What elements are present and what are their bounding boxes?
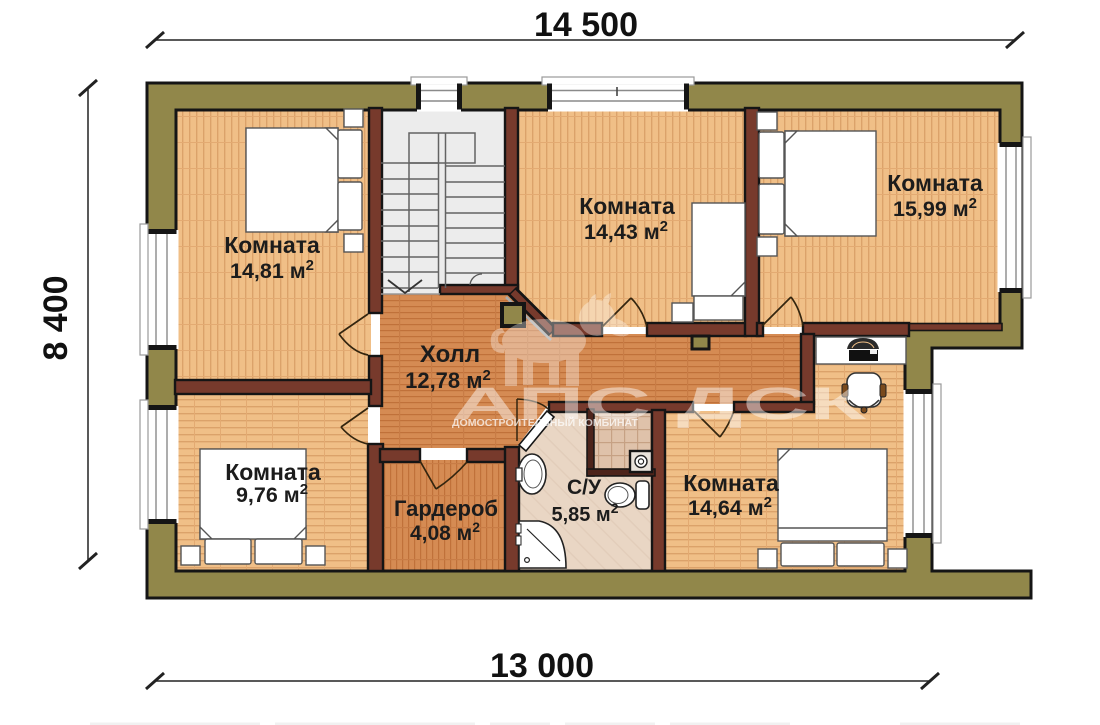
- svg-text:Комната: Комната: [579, 193, 675, 219]
- svg-text:Комната: Комната: [887, 170, 983, 196]
- svg-text:Комната: Комната: [224, 232, 320, 258]
- svg-text:14,81 м2: 14,81 м2: [230, 257, 314, 283]
- svg-text:ДОМОСТРОИТЕЛЬНЫЙ КОМБИНАТ: ДОМОСТРОИТЕЛЬНЫЙ КОМБИНАТ: [452, 416, 638, 429]
- svg-text:9,76 м2: 9,76 м2: [236, 481, 308, 507]
- svg-text:Холл: Холл: [420, 341, 480, 368]
- svg-text:14,43 м2: 14,43 м2: [584, 218, 668, 244]
- svg-text:5,85 м2: 5,85 м2: [551, 500, 618, 526]
- svg-text:8 400: 8 400: [37, 275, 75, 360]
- svg-text:14,64 м2: 14,64 м2: [688, 494, 772, 520]
- svg-text:15,99 м2: 15,99 м2: [893, 195, 977, 221]
- svg-text:С/У: С/У: [567, 476, 602, 499]
- svg-text:Комната: Комната: [683, 470, 779, 496]
- svg-text:13 000: 13 000: [490, 647, 594, 685]
- svg-text:Гардероб: Гардероб: [394, 496, 498, 521]
- svg-text:14 500: 14 500: [534, 6, 638, 44]
- svg-text:4,08 м2: 4,08 м2: [410, 519, 480, 545]
